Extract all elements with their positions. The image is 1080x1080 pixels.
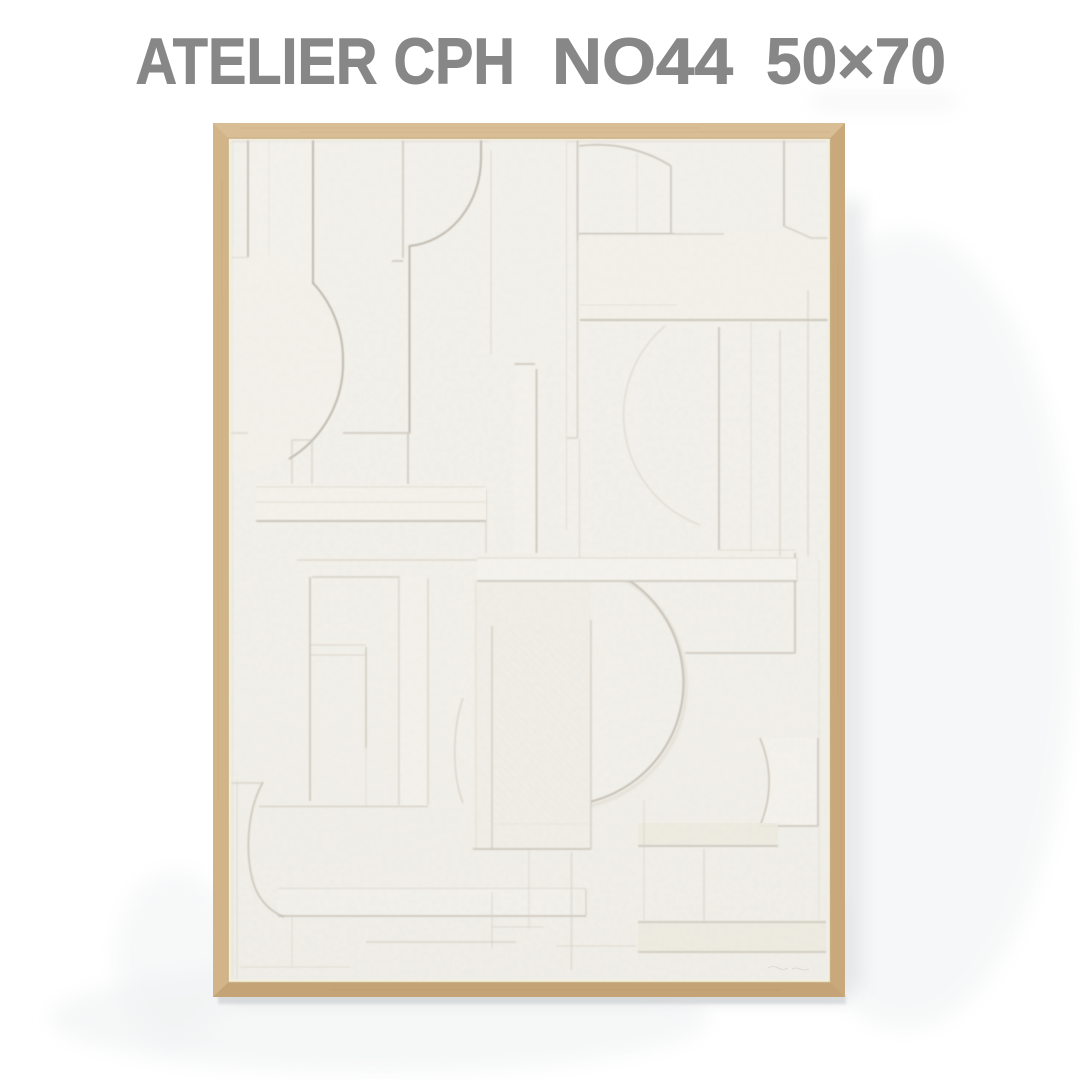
svg-text:ATELIER CPH: ATELIER CPH — [136, 26, 516, 98]
svg-text:50×70: 50×70 — [766, 26, 946, 98]
svg-text:NO44: NO44 — [552, 26, 733, 98]
